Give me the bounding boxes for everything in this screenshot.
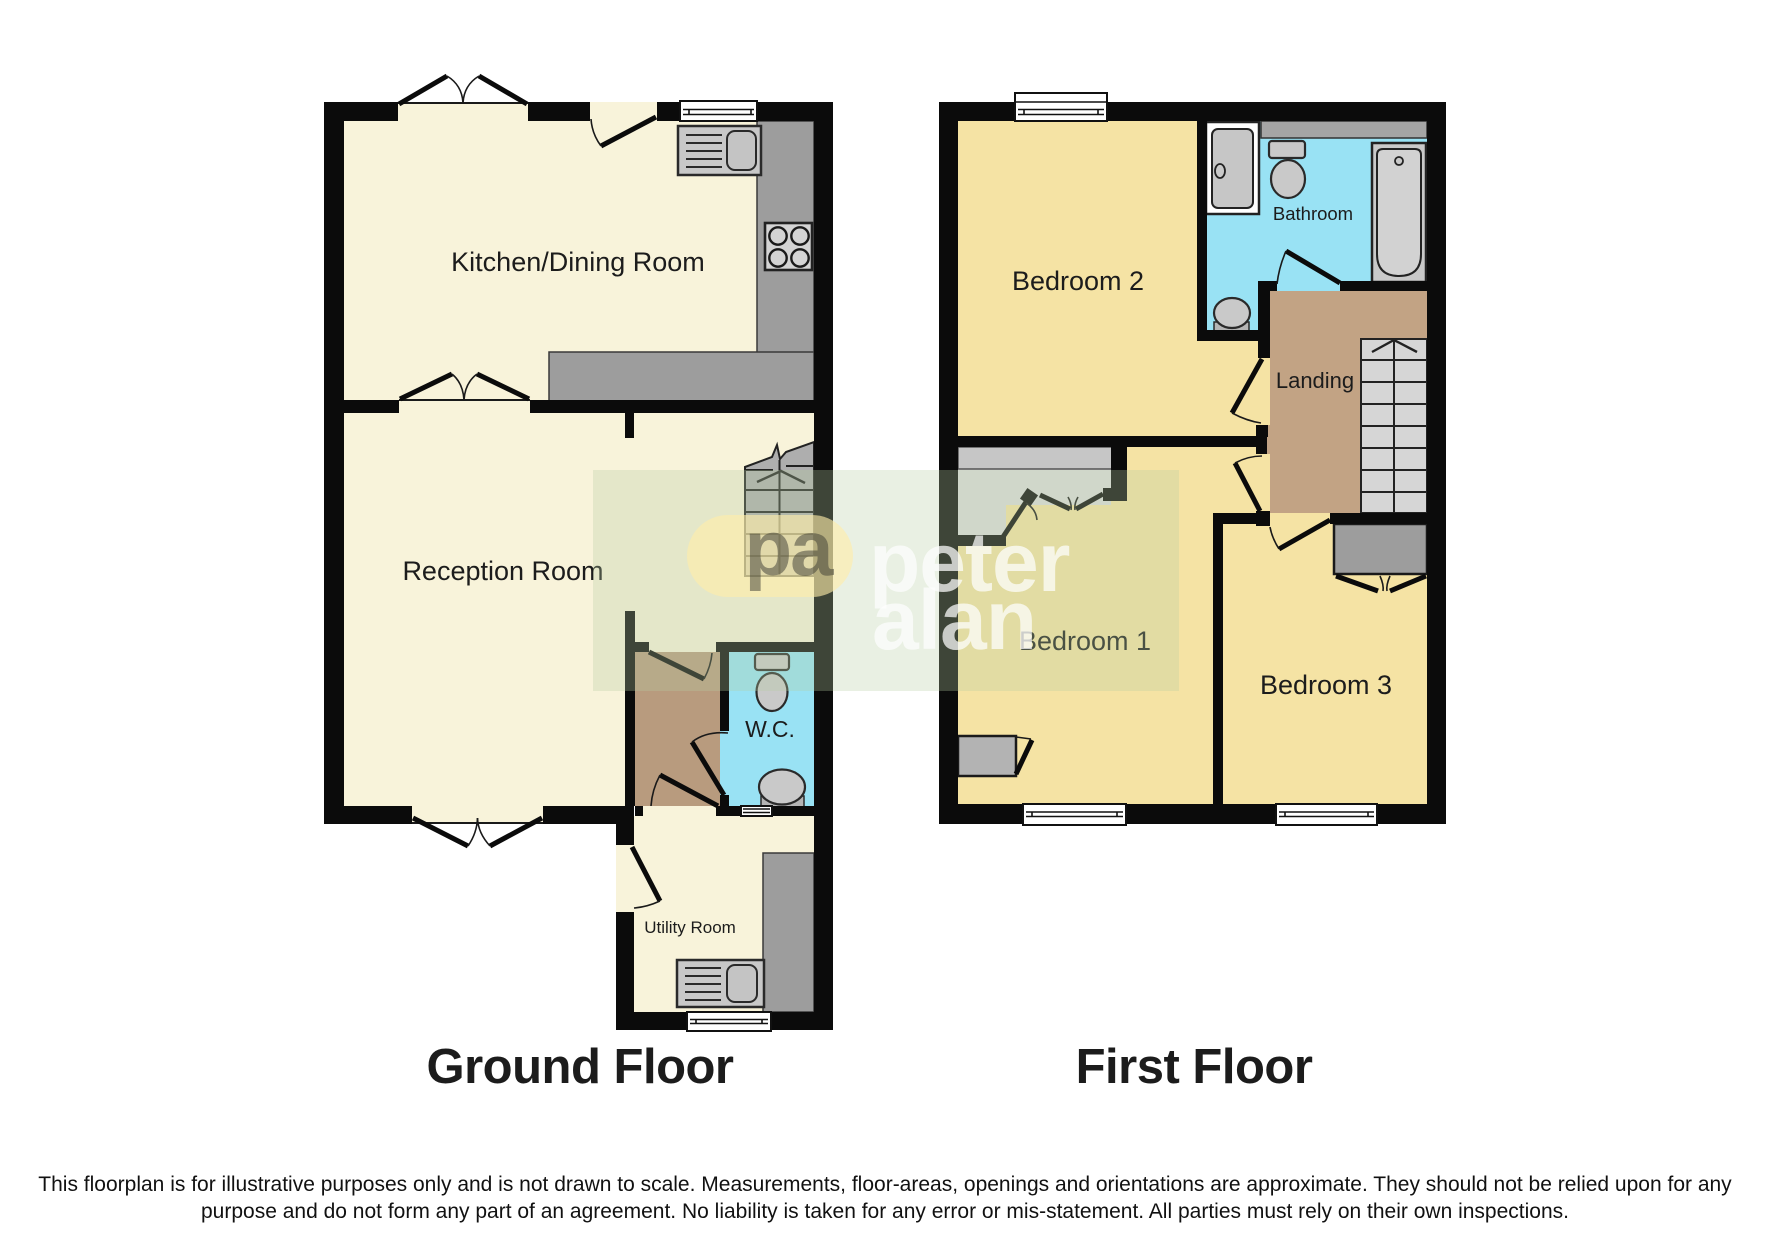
svg-text:Bathroom: Bathroom [1273,203,1353,224]
svg-text:Utility Room: Utility Room [644,918,736,937]
svg-text:purpose and do not form any pa: purpose and do not form any part of an a… [201,1200,1569,1223]
svg-text:W.C.: W.C. [745,716,795,742]
svg-text:pa: pa [744,504,834,592]
svg-text:Landing: Landing [1276,368,1354,393]
svg-text:Reception Room: Reception Room [402,556,603,586]
svg-text:This floorplan is for illustra: This floorplan is for illustrative purpo… [38,1173,1732,1196]
svg-text:First Floor: First Floor [1076,1040,1313,1094]
svg-text:Bedroom 3: Bedroom 3 [1260,670,1392,700]
svg-text:Ground Floor: Ground Floor [427,1040,734,1094]
svg-text:alan: alan [872,573,1036,667]
svg-text:Kitchen/Dining Room: Kitchen/Dining Room [451,247,705,277]
svg-text:Bedroom 2: Bedroom 2 [1012,266,1144,296]
